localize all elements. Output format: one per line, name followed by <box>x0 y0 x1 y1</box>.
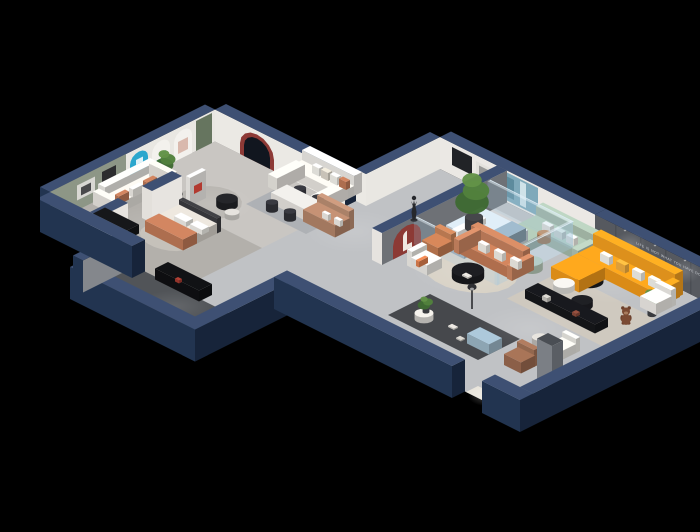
floorplan-render: LIFE IS NOT WHAT YOU HAVE DONEIT IS WHAT… <box>40 16 700 516</box>
floorplan-figure: 3D isometric furniture showroom floor pl… <box>40 16 700 516</box>
wall-outer-south-right-east <box>452 360 465 399</box>
lounge-plant-foliage <box>159 150 170 158</box>
wall-partition-bedroom-south <box>142 186 152 223</box>
table-plant-foliage <box>420 296 427 301</box>
large-tree-foliage <box>462 173 482 187</box>
ceiling-spot <box>653 244 656 246</box>
teddy-bear-muzzle <box>624 312 628 315</box>
terracotta-sofa-arm-south <box>507 265 512 282</box>
wall-partition-center-south <box>372 228 382 265</box>
sectional-sofa-back-east <box>354 172 362 196</box>
dining-chair-top <box>266 199 278 205</box>
bed-headboard-east <box>217 217 221 234</box>
wall-outer-south-bottom-east <box>195 323 208 362</box>
teddy-bear-body <box>621 314 630 325</box>
floorplan-svg: LIFE IS NOT WHAT YOU HAVE DONEIT IS WHAT… <box>40 16 700 516</box>
black-coffee-table-top <box>216 194 238 204</box>
wall-outer-west-step-south <box>73 256 83 293</box>
floor-lamp-showroom-light <box>470 288 474 291</box>
terracotta-sofa-arm-south <box>454 238 459 255</box>
mannequin-sculpture-head <box>412 196 416 200</box>
red-arch-j-inner <box>407 228 412 245</box>
ceiling-spot <box>623 229 626 231</box>
dining-chair-top <box>284 208 296 214</box>
ceiling-spot <box>683 259 686 261</box>
white-side-table-top <box>225 209 240 216</box>
wall-outer-south-left-east <box>132 240 145 279</box>
white-round-table-top <box>553 278 575 288</box>
wall-outer-south-corner-east <box>520 394 533 433</box>
slipper-chair-back-east <box>576 337 580 353</box>
